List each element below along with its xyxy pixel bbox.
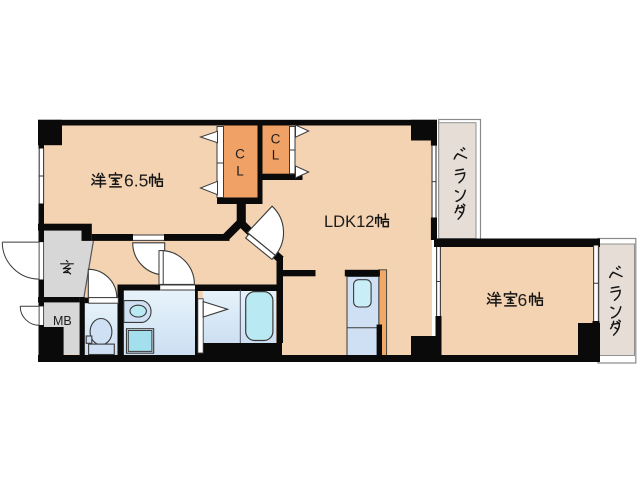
svg-text:MB: MB: [53, 314, 72, 328]
svg-text:LDK12: LDK12: [324, 213, 374, 231]
svg-text:C: C: [271, 132, 281, 147]
svg-text:C: C: [235, 147, 245, 162]
svg-text:6: 6: [518, 290, 528, 310]
svg-text:6.5: 6.5: [124, 171, 148, 191]
svg-text:L: L: [272, 148, 280, 163]
svg-text:L: L: [236, 164, 244, 179]
